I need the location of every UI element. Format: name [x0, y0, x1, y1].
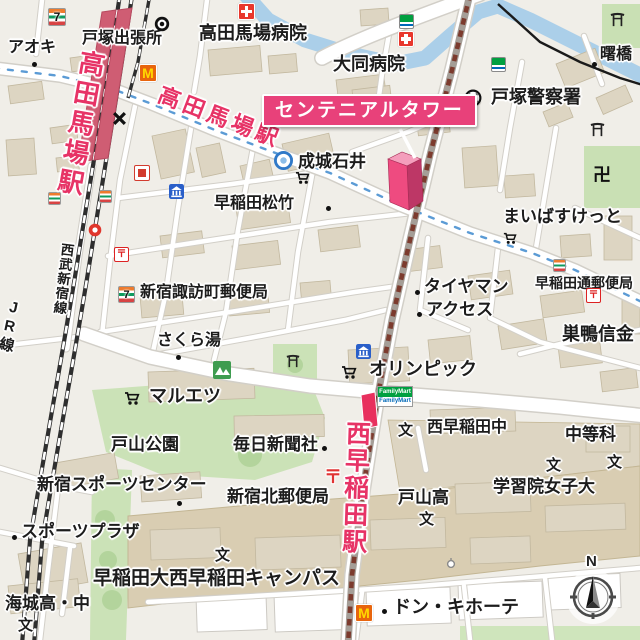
hospital-icon [398, 31, 414, 47]
poi-label: 毎日新聞社 [233, 436, 318, 453]
poi-label: 新宿スポーツセンター [37, 476, 207, 493]
ward-office-icon [154, 16, 170, 32]
post-office-mark-icon: 〒 [324, 468, 342, 486]
poi-label: 成城石井 [298, 153, 366, 170]
poi-label: 新宿諏訪町郵便局 [140, 285, 268, 301]
post-office-icon: 〒 [586, 288, 601, 303]
poi-dot [176, 355, 181, 360]
poi-label: 早稲田通郵便局 [535, 276, 633, 290]
poi-label: ドン・キホーテ [393, 598, 519, 616]
poi-label: 高田馬場病院 [199, 24, 307, 42]
school-symbol: 文 [215, 548, 230, 563]
seven-eleven-icon [553, 259, 566, 272]
poi-dot [382, 609, 387, 614]
familymart-icon [399, 14, 414, 29]
poi-dot [417, 312, 422, 317]
poi-label: タイヤマン [424, 278, 509, 295]
poi-label: 海城高・中 [5, 595, 90, 612]
poi-dot [415, 290, 420, 295]
x-mark-icon [112, 111, 127, 126]
cart-icon [295, 170, 310, 185]
poi-label: 戸塚出張所 [82, 31, 162, 47]
poi-label: アオキ [8, 40, 56, 56]
cart-icon [124, 390, 140, 406]
bank-icon [169, 184, 184, 199]
school-symbol: 文 [18, 618, 33, 633]
poi-label: オリンピック [369, 360, 477, 378]
poi-dot [12, 535, 17, 540]
cart-icon [341, 364, 357, 380]
compass-north-label: N [586, 554, 597, 569]
seven-eleven-icon [99, 190, 112, 203]
hospital-icon [238, 3, 255, 20]
post-office-icon: 〒 [114, 247, 129, 262]
poi-label: 中等科 [565, 426, 616, 443]
poi-label: 大同病院 [333, 55, 405, 73]
monument-icon [446, 558, 456, 568]
poi-label: 早稲田大西早稲田キャンパス [93, 569, 340, 588]
school-symbol: 文 [607, 455, 622, 470]
poi-label: 早稲田松竹 [214, 196, 294, 212]
seven-eleven-icon: 7 [118, 286, 135, 303]
poi-dot [592, 62, 597, 67]
poi-dot [177, 501, 182, 506]
poi-dot [32, 62, 37, 67]
school-symbol: 文 [546, 458, 561, 473]
poi-label: 巣鴨信金 [562, 325, 634, 343]
park-icon [213, 361, 231, 379]
poi-label: 戸山公園 [111, 436, 179, 453]
poi-dot [326, 206, 331, 211]
mcdonalds-icon: M [355, 604, 373, 622]
poi-label: 新宿北郵便局 [227, 488, 329, 505]
poi-label: アクセス [426, 301, 493, 318]
poi-label: 西早稲田中 [427, 420, 507, 436]
cart-icon [503, 231, 517, 245]
poi-label: 戸塚警察署 [491, 88, 581, 106]
station-label-nishiwaseda: 西早稲田駅 [339, 420, 369, 556]
poi-label: 曙橋 [600, 47, 632, 63]
poi-label: 学習院女子大 [493, 478, 595, 495]
store-icon [134, 165, 150, 181]
poi-label: さくら湯 [157, 333, 221, 349]
bank-icon [356, 344, 371, 359]
manji-icon: 卍 [593, 166, 611, 184]
seijo-ishii-icon [274, 151, 293, 170]
poi-label: スポーツプラザ [21, 523, 140, 540]
mcdonalds-icon: M [139, 64, 157, 82]
poi-label: まいばすけっと [503, 208, 622, 225]
familymart-icon [491, 57, 506, 72]
restaurant-icon [88, 223, 102, 237]
school-symbol: 文 [398, 423, 413, 438]
torii-icon [610, 12, 625, 27]
familymart-sign-icon: FamilyMartFamilyMart [377, 386, 413, 407]
map: アオキ戸塚出張所高田馬場病院大同病院曙橋戸塚警察署成城石井早稲田松竹まいばすけっ… [0, 0, 640, 640]
poi-dot [322, 446, 327, 451]
school-symbol: 文 [419, 512, 434, 527]
seven-eleven-icon: 7 [48, 8, 66, 26]
property-callout: センテニアルタワー [262, 94, 477, 127]
torii-icon [590, 122, 605, 137]
poi-label: 戸山高 [398, 489, 449, 506]
poi-label: マルエツ [149, 387, 221, 405]
torii-icon [286, 354, 300, 368]
